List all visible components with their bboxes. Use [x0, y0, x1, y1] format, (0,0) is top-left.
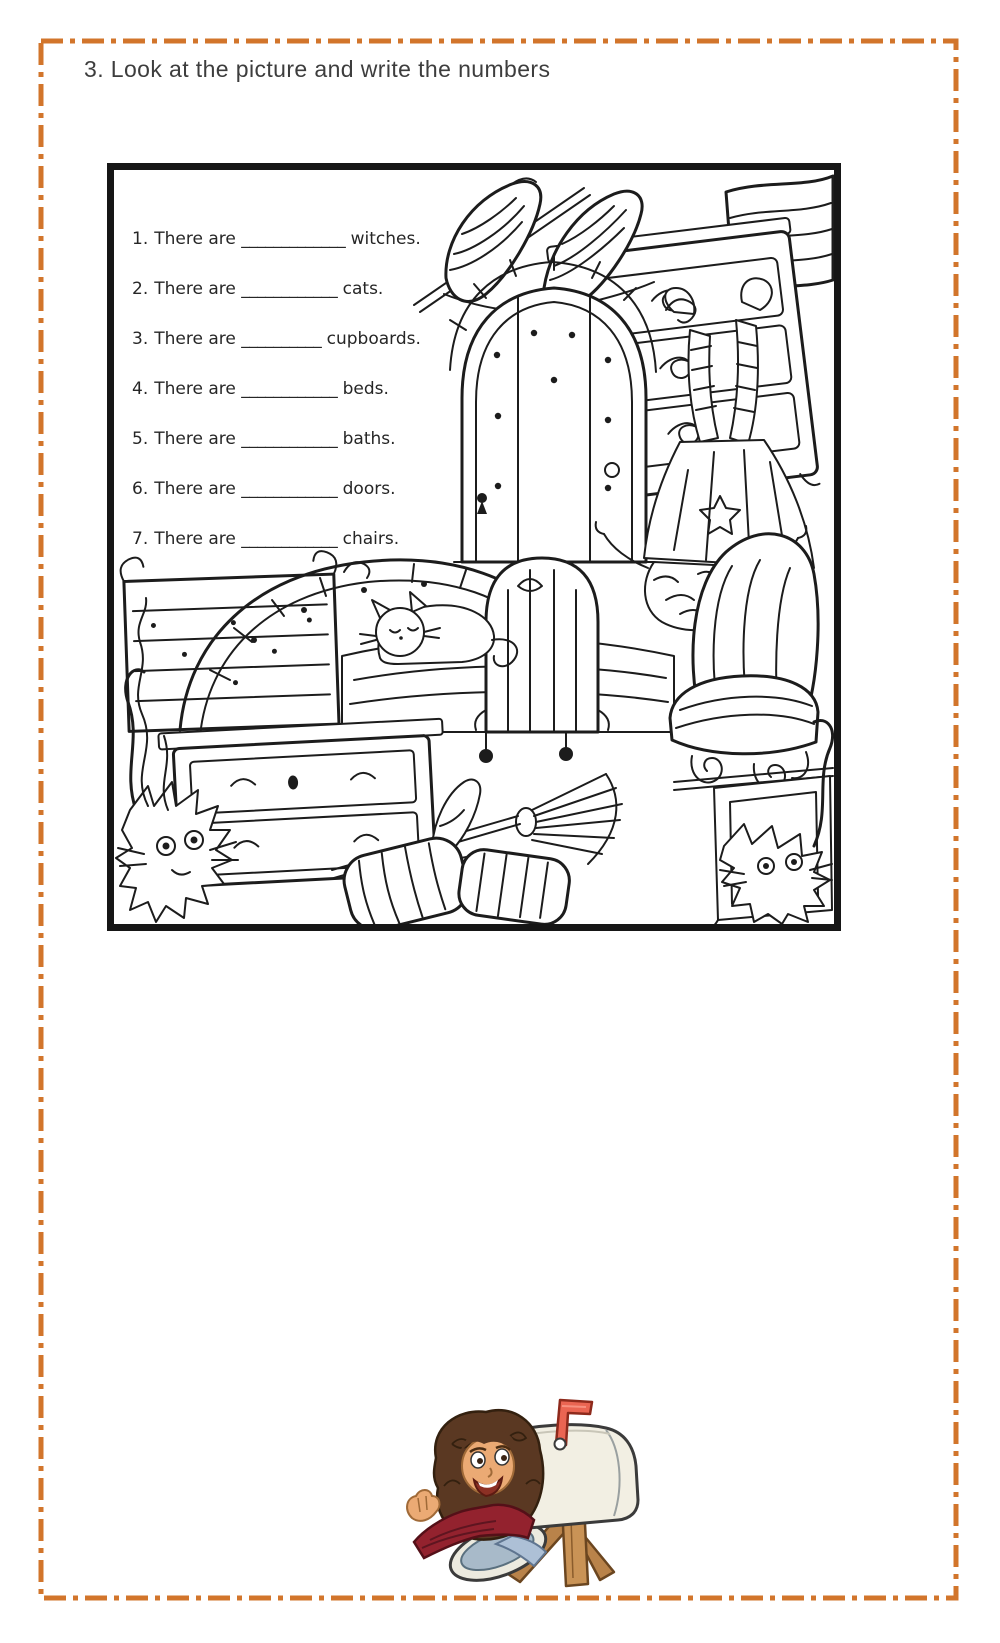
sentence-noun: beds. — [343, 379, 389, 399]
sentence-row: 4.There are ____________ beds. — [132, 364, 421, 414]
sentence-text: There are — [154, 479, 236, 499]
sentence-number: 3. — [132, 329, 148, 349]
sentence-number: 5. — [132, 429, 148, 449]
sentence-row: 5.There are ____________ baths. — [132, 414, 421, 464]
waving-hand — [407, 1490, 439, 1521]
sentence-number: 7. — [132, 529, 148, 549]
sentence-noun: witches. — [351, 229, 421, 249]
sentence-text: There are — [154, 379, 236, 399]
sentence-row: 6.There are ____________ doors. — [132, 464, 421, 514]
sentence-row: 2.There are ____________ cats. — [132, 264, 421, 314]
sentence-noun: cats. — [343, 279, 384, 299]
answer-blank[interactable]: ____________ — [241, 479, 337, 499]
sentence-row: 7.There are ____________ chairs. — [132, 514, 421, 564]
sentence-text: There are — [154, 279, 236, 299]
worksheet-page: 3. Look at the picture and write the num… — [0, 0, 1000, 1643]
sentence-noun: baths. — [343, 429, 396, 449]
sentence-noun: chairs. — [343, 529, 400, 549]
sentence-text: There are — [154, 429, 236, 449]
sentence-number: 2. — [132, 279, 148, 299]
sentence-noun: doors. — [343, 479, 396, 499]
sentence-text: There are — [154, 329, 236, 349]
sentence-row: 1.There are _____________ witches. — [132, 214, 421, 264]
sentence-noun: cupboards. — [327, 329, 421, 349]
picture-box: 1.There are _____________ witches.2.Ther… — [107, 163, 841, 931]
answer-blank[interactable]: ____________ — [241, 429, 337, 449]
answer-blank[interactable]: _____________ — [241, 229, 345, 249]
sentence-number: 6. — [132, 479, 148, 499]
sentence-text: There are — [154, 229, 236, 249]
sentence-number: 4. — [132, 379, 148, 399]
answer-blank[interactable]: ____________ — [241, 529, 337, 549]
bed-headboard — [120, 551, 342, 732]
exercise-title: 3. Look at the picture and write the num… — [84, 56, 550, 83]
sentence-list: 1.There are _____________ witches.2.Ther… — [132, 214, 421, 564]
avatar-mailbox-sticker — [400, 1388, 650, 1588]
answer-blank[interactable]: ____________ — [241, 279, 337, 299]
sentence-row: 3.There are __________ cupboards. — [132, 314, 421, 364]
arched-door — [450, 254, 656, 562]
sentence-number: 1. — [132, 229, 148, 249]
sentence-text: There are — [154, 529, 236, 549]
answer-blank[interactable]: __________ — [241, 329, 321, 349]
answer-blank[interactable]: ____________ — [241, 379, 337, 399]
